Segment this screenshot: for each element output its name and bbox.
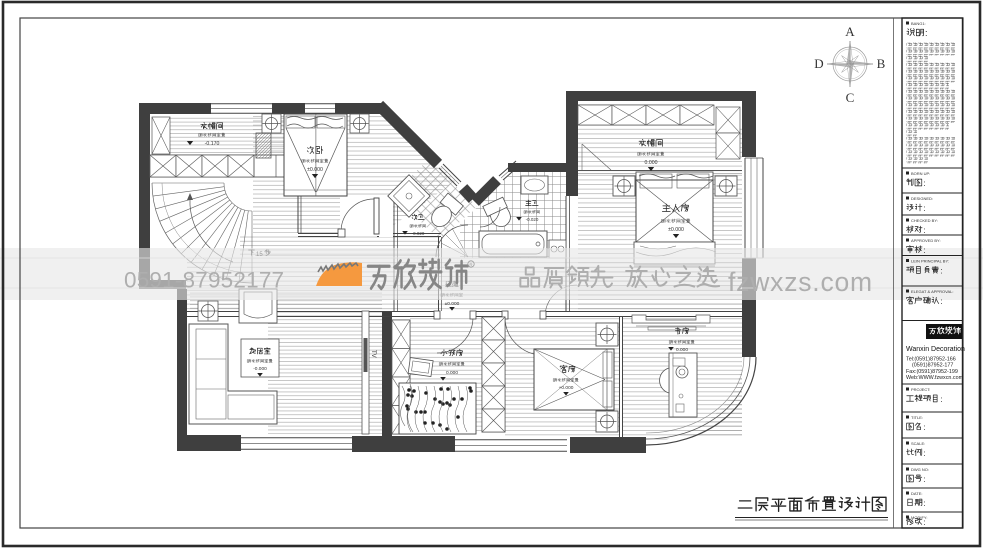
svg-text::: : — [925, 28, 928, 38]
svg-text:ELEGAT & APPROVAL:: ELEGAT & APPROVAL: — [911, 289, 953, 294]
svg-text:0.000: 0.000 — [446, 370, 458, 376]
svg-text:±0.000: ±0.000 — [445, 301, 460, 307]
svg-text:TITLE:: TITLE: — [911, 415, 923, 420]
svg-text::: : — [923, 518, 925, 527]
svg-text:DESIGNED:: DESIGNED: — [911, 196, 933, 201]
svg-text:0591-87952177: 0591-87952177 — [124, 268, 284, 293]
svg-text:-0.000: -0.000 — [253, 366, 267, 372]
svg-text:PROJECT:: PROJECT: — [911, 387, 930, 392]
svg-text:Fax:(0591)87952-199: Fax:(0591)87952-199 — [906, 369, 958, 375]
svg-text:fzwxzs.com: fzwxzs.com — [728, 267, 873, 297]
svg-text::: : — [923, 246, 925, 255]
svg-text:B: B — [877, 56, 886, 71]
svg-text:C: C — [846, 90, 855, 105]
svg-text:TV: TV — [370, 350, 376, 358]
svg-text::: : — [941, 297, 943, 306]
svg-text::: : — [923, 475, 925, 484]
svg-text::: : — [923, 423, 925, 432]
svg-text:DATE:: DATE: — [911, 491, 922, 496]
svg-text:-0.020: -0.020 — [412, 231, 425, 236]
svg-text:APPROVED BY:: APPROVED BY: — [911, 238, 941, 243]
svg-text:-0.020: -0.020 — [526, 217, 539, 222]
svg-text::: : — [941, 267, 943, 276]
svg-text:CHECKED BY:: CHECKED BY: — [911, 218, 938, 223]
svg-text:Web:WWW.fzwxcn.com: Web:WWW.fzwxcn.com — [906, 375, 964, 381]
svg-text::: : — [923, 499, 925, 508]
svg-text:0.000: 0.000 — [676, 347, 688, 353]
svg-text::: : — [923, 449, 925, 458]
svg-text:SCALE:: SCALE: — [911, 441, 925, 446]
svg-text:±0.000: ±0.000 — [307, 167, 323, 173]
svg-text:LEIN PRINCIPAL BY:: LEIN PRINCIPAL BY: — [911, 259, 949, 264]
svg-text:±0.000: ±0.000 — [668, 227, 684, 233]
svg-text:DWG NO:: DWG NO: — [911, 467, 929, 472]
svg-text:BANG1:: BANG1: — [911, 21, 926, 26]
svg-text::: : — [923, 204, 925, 213]
svg-text:-0.170: -0.170 — [205, 141, 220, 147]
svg-text:Tel:(0591)87952-166: Tel:(0591)87952-166 — [906, 357, 956, 363]
svg-text:0.000: 0.000 — [645, 160, 658, 166]
svg-text:A: A — [845, 24, 855, 39]
svg-text:BORN UP:: BORN UP: — [911, 171, 930, 176]
svg-text::: : — [923, 179, 925, 188]
svg-text:+0.000: +0.000 — [559, 385, 574, 391]
svg-text:(0591)87952-177: (0591)87952-177 — [906, 363, 953, 369]
svg-text::: : — [941, 395, 943, 404]
svg-text::: : — [923, 226, 925, 235]
svg-text:D: D — [814, 56, 823, 71]
svg-text:Wanxin Decoration: Wanxin Decoration — [906, 346, 965, 353]
